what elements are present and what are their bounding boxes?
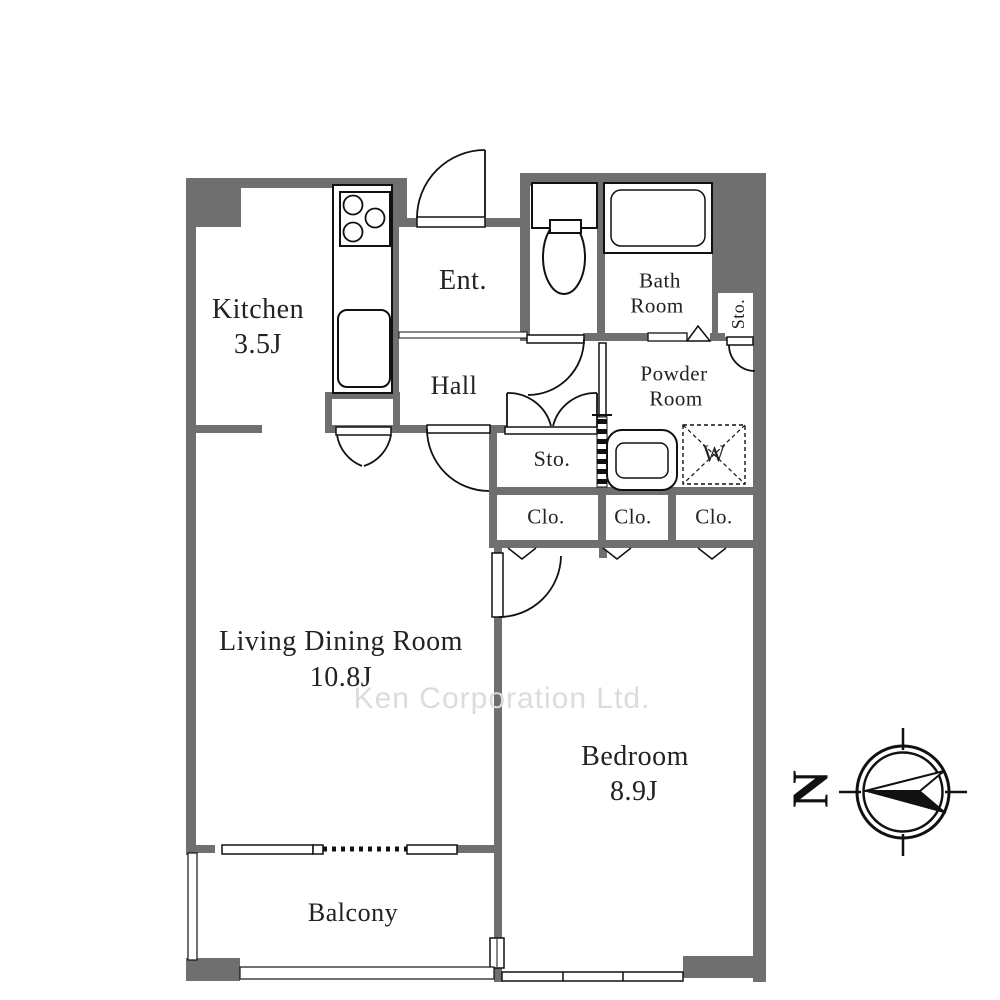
ldk-window-latch [313,845,323,854]
wall-closet-divider2 [668,495,676,540]
entrance-door-plate [417,217,485,227]
wall-balcony-bedroom [494,845,502,938]
wall-sto-left [489,425,497,548]
wall-kitchen-stub [186,425,262,433]
balcony-rail-bottom [240,967,494,979]
washing-machine-label: W [703,442,726,469]
closet3-door-marker [698,548,726,559]
wall-ent-left [398,218,417,227]
wall-midsection-seg1 [583,333,648,341]
kitchen-label: Kitchen [212,296,304,324]
closet1-door-marker [508,548,536,559]
closet2-door-marker [603,548,631,559]
toilet-flush [550,220,581,233]
stove-burner-1 [344,196,363,215]
hall-storage-door-arc-left [507,393,551,426]
closet2-label: Clo. [614,507,652,528]
north-arrow-upper [865,771,944,791]
kitchen-area: 3.5J [234,331,282,359]
wc-door-plate [527,335,584,343]
closet1-label: Clo. [527,507,565,528]
wall-wc-left [520,182,530,341]
balcony-label: Balcony [308,900,398,926]
wall-ldk-bottom-left [186,845,215,853]
stove-burner-2 [366,209,385,228]
wall-hall-ldk-seg [400,425,428,433]
storage-upper-label: Sto. [729,299,747,330]
wall-below-small-window [494,968,502,982]
basin-inner [616,443,668,478]
bedroom-door-plate [492,553,503,617]
storage-upper-door-arc [729,345,755,371]
bedroom-area: 8.9J [610,778,658,806]
powder-label-line2: Room [649,389,702,410]
balcony-rail-left [188,853,197,960]
watermark: Ken Corporation Ltd. [354,682,651,716]
entrance-step [399,332,527,338]
powder-label-line1: Powder [640,364,707,385]
north-label: N [782,770,841,808]
ldk-window-pane1 [222,845,313,854]
wall-ldk-bottom-right [457,845,494,853]
bedroom-door-arc [499,556,561,617]
bathroom-label-line2: Room [630,296,683,317]
bathroom-label-line1: Bath [639,271,681,292]
bathtub-inner [611,190,705,246]
ldk-window-pane2 [407,845,457,854]
wall-left [186,178,196,855]
bedroom-window [502,972,683,981]
thin-wall-powder [599,343,606,417]
kitchen-niche-arc-right [364,435,391,466]
storage-hall-label: Sto. [534,448,571,470]
entrance-label: Ent. [439,267,487,295]
wall-closet-divider1 [598,495,606,540]
living-door-arc [427,429,489,491]
hall-storage-door-arc-right [553,393,597,426]
bath-door-plate [648,333,687,341]
living-label: Living Dining Room [219,628,463,656]
stove-burner-3 [344,223,363,242]
kitchen-niche-arc-left [337,435,362,466]
compass [839,728,967,856]
wall-right [753,186,766,982]
bedroom-label: Bedroom [581,743,689,771]
kitchen-niche-door-plate [336,427,391,435]
storage-upper-door-plate [727,337,753,345]
kitchen-niche-interior [332,399,393,425]
north-arrow-lower [865,791,946,813]
kitchen-sink [338,310,390,387]
floorplan-page: Kitchen 3.5J Ent. Hall Bath Room Powder … [0,0,1000,1000]
wall-balcony-block [186,958,240,981]
wall-bottom-right-block [683,956,766,978]
living-door-plate [427,425,490,433]
hall-storage-door-plate [505,427,597,434]
hall-label: Hall [431,373,478,399]
wall-closet-bottom [489,540,766,548]
floorplan-drawing [0,0,1000,1000]
closet3-label: Clo. [695,507,733,528]
wc-door-arc [528,339,584,395]
entrance-door-arc [417,150,485,218]
wall-counter-side [392,185,399,393]
bath-door-triangle [687,326,710,341]
wall-ldk-bedroom [494,616,502,845]
